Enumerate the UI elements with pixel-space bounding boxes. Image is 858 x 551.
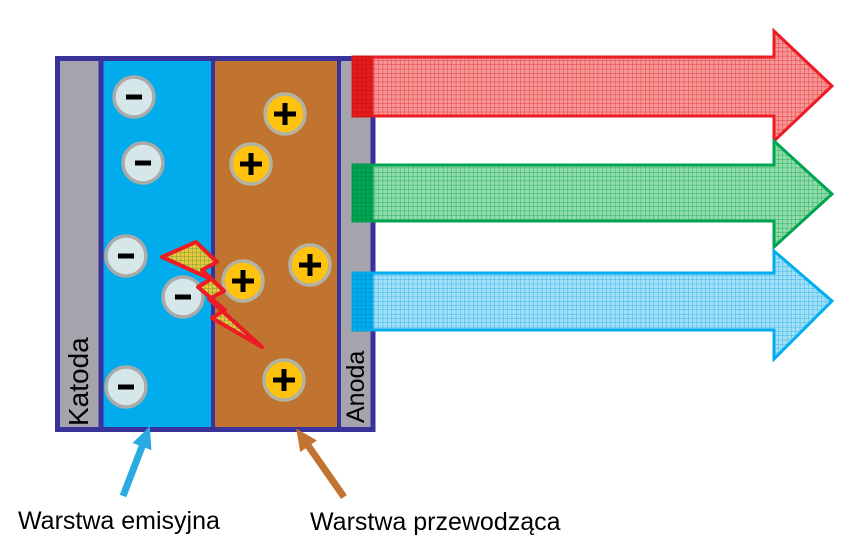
- conductive-layer-caption: Warstwa przewodząca: [310, 508, 561, 536]
- oled-stack: [58, 58, 374, 430]
- minus-charge: [106, 236, 146, 276]
- light-arrow-green-base: [352, 164, 374, 223]
- light-arrows: [352, 31, 833, 359]
- minus-charge: [163, 277, 203, 317]
- emissive-layer-caption: Warstwa emisyjna: [18, 507, 220, 535]
- cathode-label: Katoda: [63, 337, 94, 426]
- oled-diagram-canvas: Katoda Anoda Warstwa emisyjna Warstwa pr…: [0, 0, 858, 551]
- light-arrow-blue-base: [352, 272, 374, 332]
- light-arrow-red-base: [352, 56, 374, 118]
- plus-charge: [264, 360, 304, 400]
- minus-charge: [123, 143, 163, 183]
- plus-charge: [231, 144, 271, 184]
- minus-charge: [114, 77, 154, 117]
- plus-charge: [223, 261, 263, 301]
- minus-charge: [106, 367, 146, 407]
- oled-diagram: Katoda Anoda Warstwa emisyjna Warstwa pr…: [0, 0, 858, 551]
- plus-charge: [265, 94, 305, 134]
- anode-label: Anoda: [342, 351, 370, 423]
- plus-charge: [290, 245, 330, 285]
